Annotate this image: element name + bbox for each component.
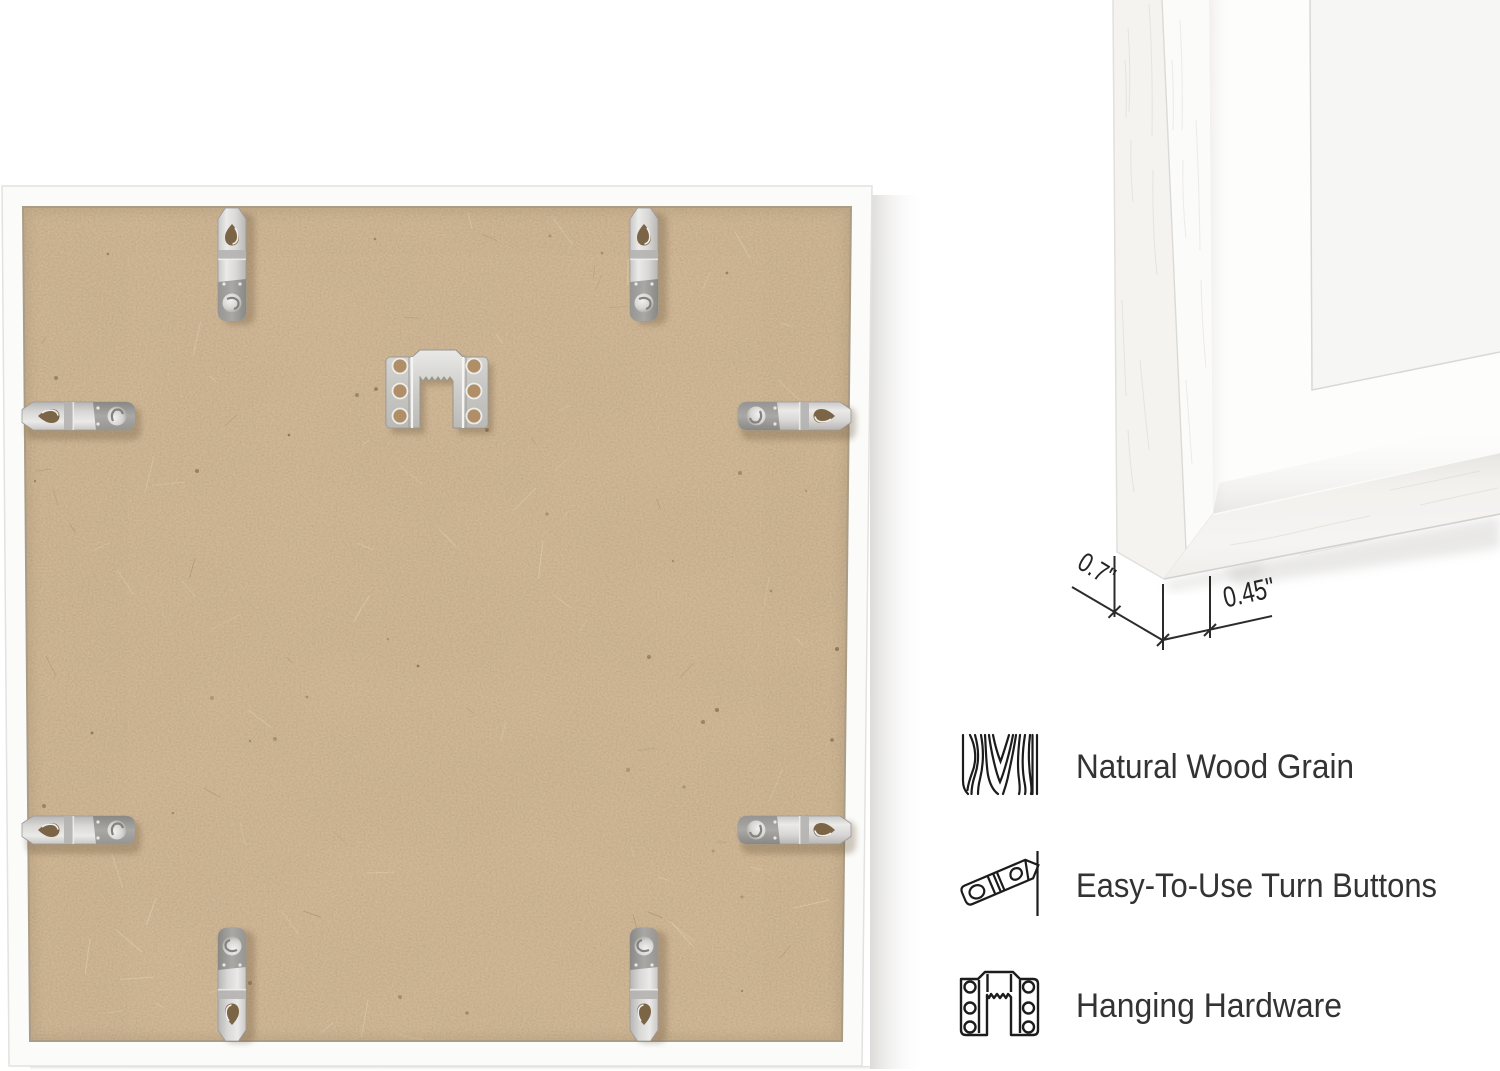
svg-text:Easy-To-Use Turn Buttons: Easy-To-Use Turn Buttons <box>1076 867 1437 905</box>
svg-text:Hanging Hardware: Hanging Hardware <box>1076 987 1342 1025</box>
svg-text:0.7": 0.7" <box>1073 547 1121 592</box>
svg-text:Natural Wood Grain: Natural Wood Grain <box>1076 748 1354 786</box>
